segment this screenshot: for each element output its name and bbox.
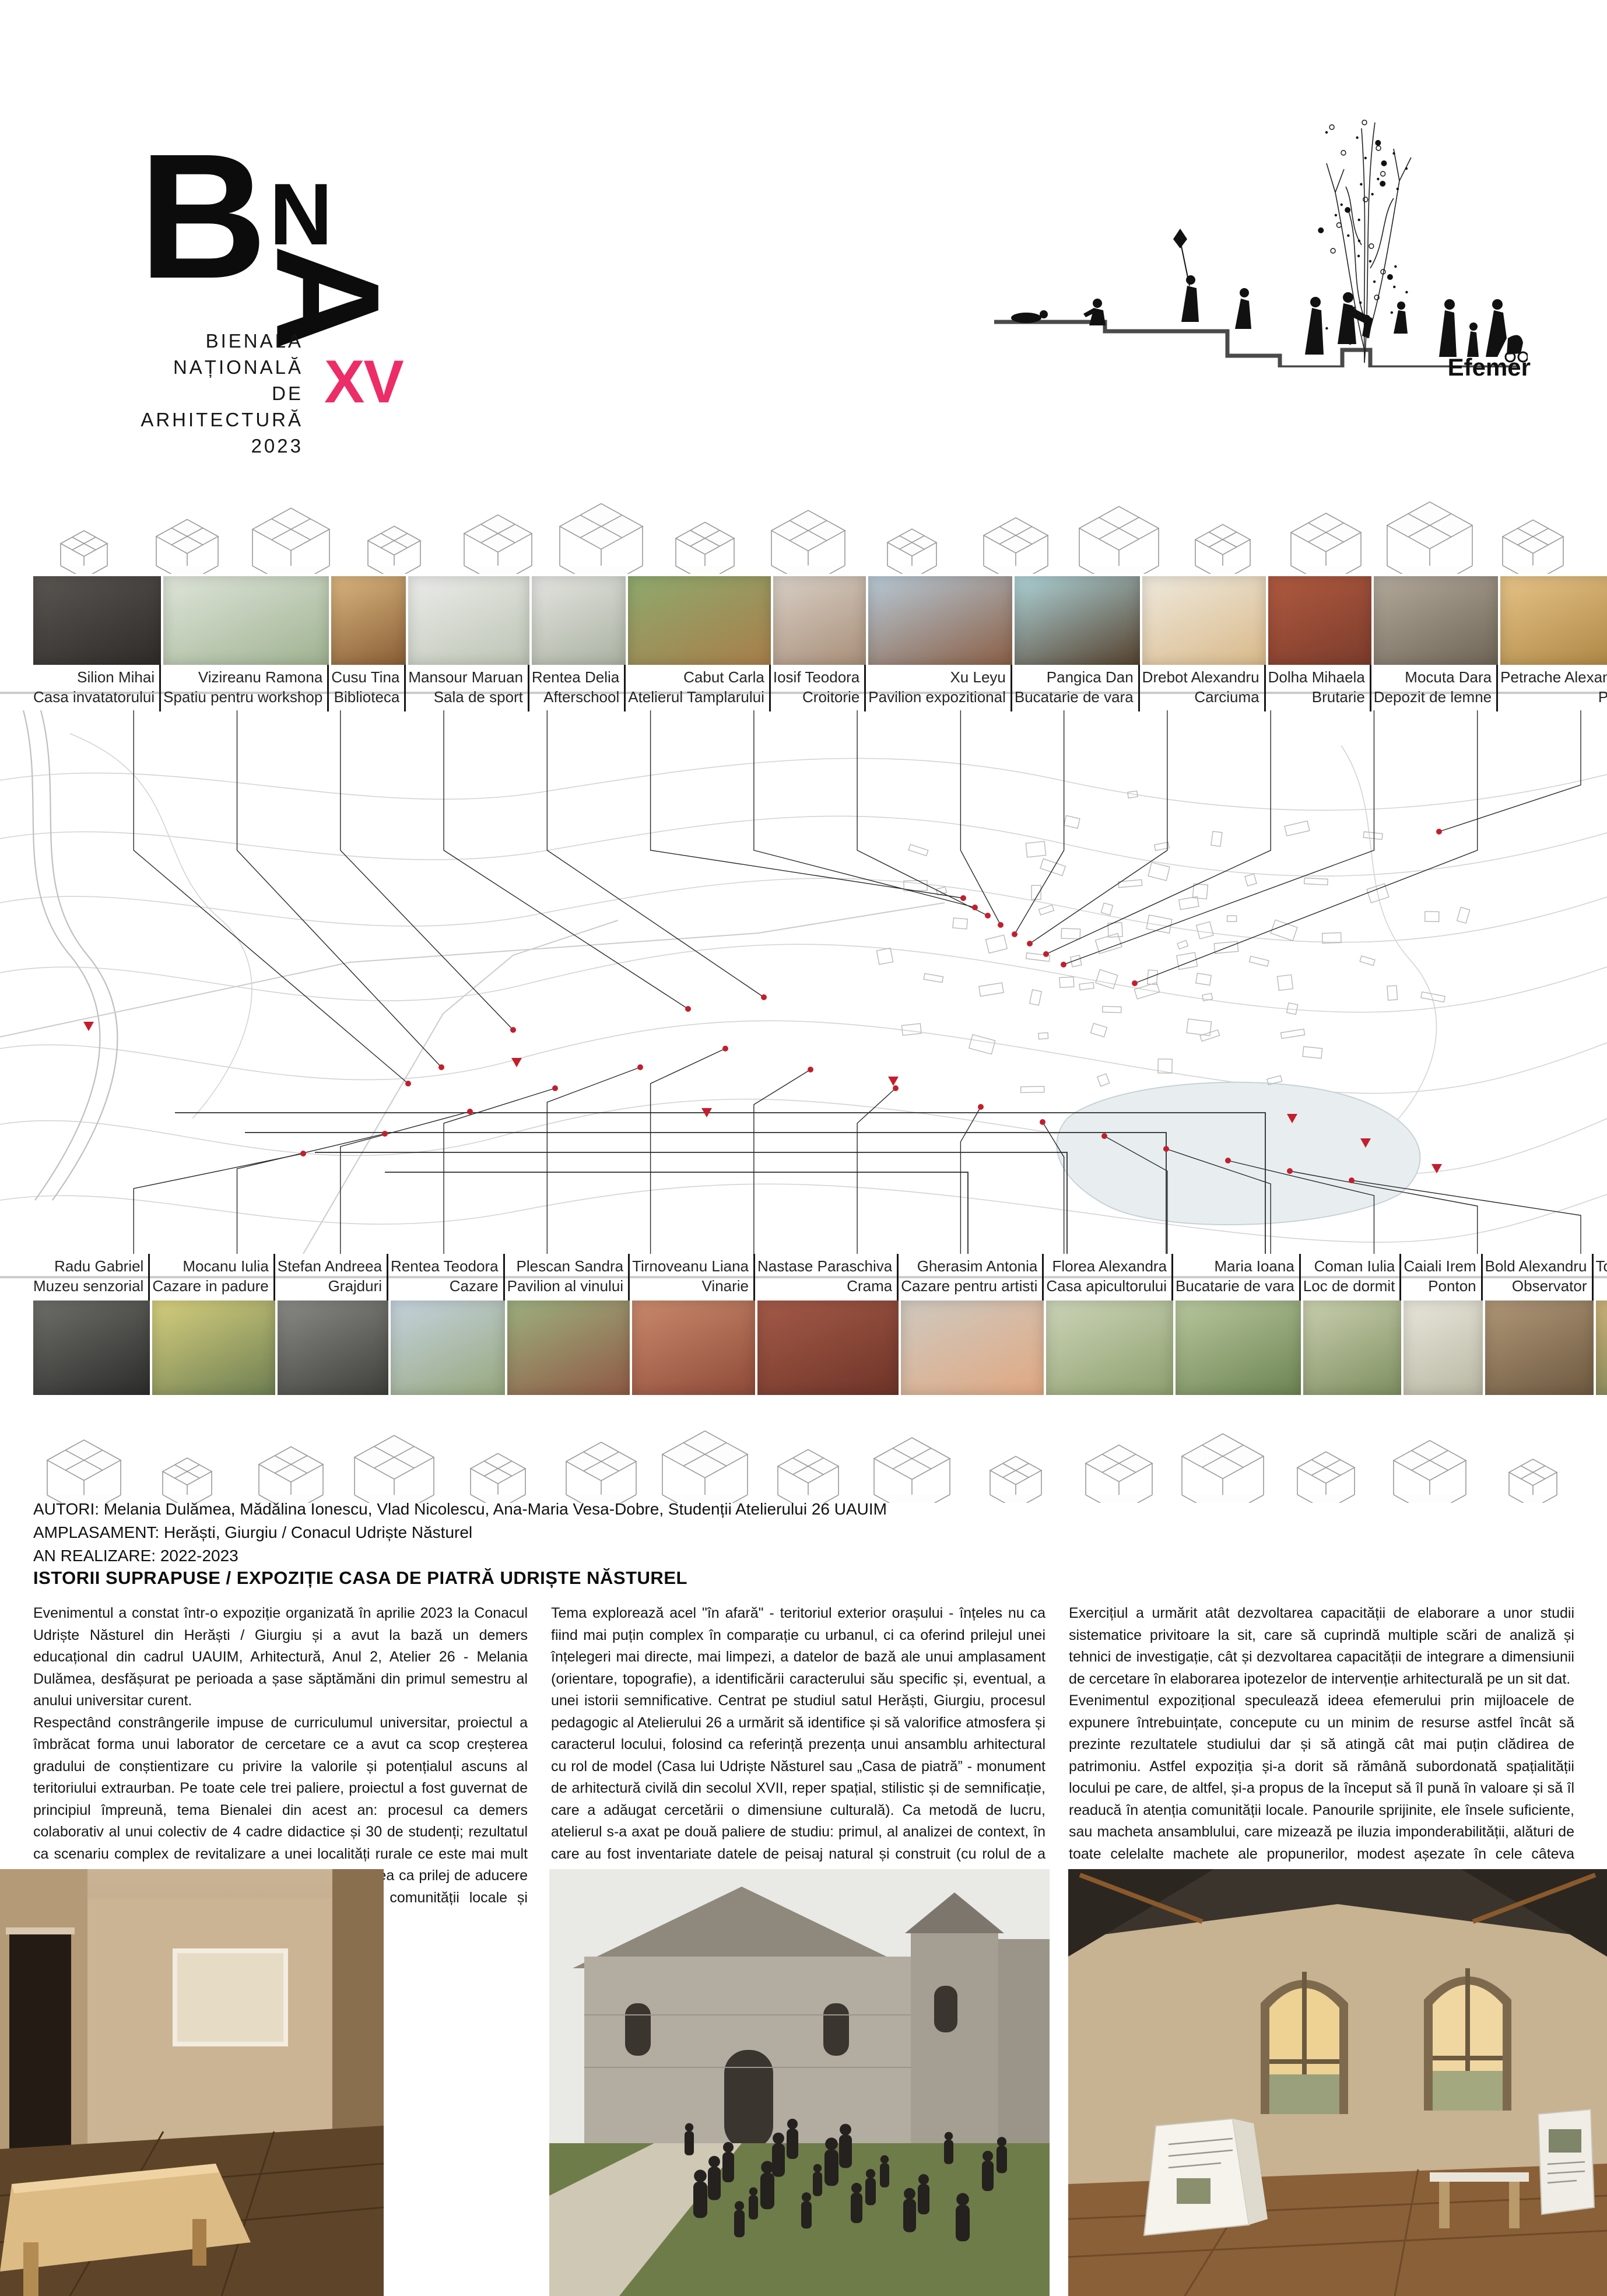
project-caption: Caiali IremPonton xyxy=(1404,1254,1482,1301)
axonometric-drawing xyxy=(966,1425,1066,1503)
project-name: Grajduri xyxy=(278,1276,382,1296)
axonometric-drawing xyxy=(344,495,444,574)
project-cell: Stefan AndreeaGrajduri xyxy=(278,1254,388,1395)
axonometric-drawing xyxy=(758,478,858,574)
map-point-marker xyxy=(893,1085,899,1091)
project-name: Muzeu senzorial xyxy=(33,1276,143,1296)
project-thumbnail xyxy=(628,576,771,665)
project-thumbnail xyxy=(1596,1301,1607,1395)
project-thumbnail xyxy=(33,1301,150,1395)
project-caption: Florea AlexandraCasa apicultorului xyxy=(1046,1254,1173,1301)
project-cell: Drebot AlexandruCarciuma xyxy=(1142,576,1266,711)
axonometric-drawing xyxy=(448,483,548,574)
project-thumbnail xyxy=(33,576,161,665)
project-name: Depozit de lemne xyxy=(1374,687,1492,707)
project-name: Afterschool xyxy=(532,687,619,707)
project-caption: Mansour MaruanSala de sport xyxy=(408,665,529,711)
author-name: Maria Ioana xyxy=(1176,1256,1294,1276)
site-plan-map xyxy=(0,710,1607,1254)
project-cell: Pangica DanBucatarie de vara xyxy=(1015,576,1140,711)
logo-line: ARHITECTURĂ xyxy=(70,406,303,433)
author-name: Rentea Delia xyxy=(532,667,619,687)
axonometric-drawing xyxy=(758,1418,858,1503)
project-thumbnail xyxy=(901,1301,1044,1395)
project-name: Brutarie xyxy=(1268,687,1365,707)
map-point-marker xyxy=(998,922,1004,928)
body-paragraph: Exercițiul a urmărit atât dezvoltarea ca… xyxy=(1069,1603,1574,1690)
project-thumbnail xyxy=(1142,576,1266,665)
project-thumbnail xyxy=(868,576,1012,665)
photo-exhibition-room xyxy=(1068,1869,1607,2296)
map-point-marker xyxy=(685,1006,691,1012)
author-name: Bold Alexandru xyxy=(1485,1256,1587,1276)
axonometric-drawing xyxy=(1069,474,1169,574)
project-thumbnail xyxy=(1374,576,1498,665)
people-silhouettes xyxy=(1011,229,1528,362)
project-name: Casa apicultorului xyxy=(1046,1276,1167,1296)
axonometric-drawing xyxy=(655,490,755,574)
project-cell: Silion MihaiCasa invatatorului xyxy=(33,576,161,711)
project-name: Carciuma xyxy=(1142,687,1259,707)
map-point-marker xyxy=(1101,1133,1107,1139)
project-name: Casa invatatorului xyxy=(33,687,155,707)
map-point-marker xyxy=(1027,941,1033,947)
people-illustration xyxy=(985,93,1528,367)
author-name: Vizireanu Ramona xyxy=(163,667,322,687)
project-name: Vinarie xyxy=(632,1276,749,1296)
project-cell: Maria IoanaBucatarie de vara xyxy=(1176,1254,1301,1395)
project-caption: Mocuta DaraDepozit de lemne xyxy=(1374,665,1498,711)
project-caption: Silion MihaiCasa invatatorului xyxy=(33,665,161,711)
map-point-marker xyxy=(808,1067,813,1072)
axonometric-drawing xyxy=(862,1405,962,1503)
logo-line: BIENALA xyxy=(70,328,303,354)
axonometric-drawing xyxy=(655,1398,755,1503)
project-name: Spatiu pentru workshop xyxy=(163,687,322,707)
project-cell: Cabut CarlaAtelierul Tamplarului xyxy=(628,576,771,711)
project-cell: Nastase ParaschivaCrama xyxy=(757,1254,899,1395)
map-point-marker xyxy=(467,1109,473,1114)
project-cell: Radu GabrielMuzeu senzorial xyxy=(33,1254,150,1395)
project-name: Sala de sport xyxy=(408,687,523,707)
project-name: Cazare xyxy=(391,1276,499,1296)
arched-window xyxy=(1261,1972,1348,2114)
author-name: Mocanu Iulia xyxy=(152,1256,268,1276)
author-name: Petrache Alexandru xyxy=(1500,667,1607,687)
project-caption: Stefan AndreeaGrajduri xyxy=(278,1254,388,1301)
logo-line: DE xyxy=(70,380,303,406)
project-cell: Vizireanu RamonaSpatiu pentru workshop xyxy=(163,576,329,711)
project-row-bottom: Radu GabrielMuzeu senzorialMocanu IuliaC… xyxy=(33,1254,1584,1395)
project-caption: Tirnoveanu LianaVinarie xyxy=(632,1254,755,1301)
lake xyxy=(1057,1082,1420,1225)
project-cell: Gherasim AntoniaCazare pentru artisti xyxy=(901,1254,1044,1395)
project-thumbnail xyxy=(278,1301,388,1395)
axonometric-drawing xyxy=(1380,1408,1480,1503)
author-name: Rentea Teodora xyxy=(391,1256,499,1276)
project-name: Observator xyxy=(1485,1276,1587,1296)
axonometric-drawing xyxy=(1173,1401,1273,1503)
project-thumbnail xyxy=(1176,1301,1301,1395)
author-name: Cusu Tina xyxy=(331,667,399,687)
site-line: AMPLASAMENT: Herăști, Giurgiu / Conacul … xyxy=(33,1521,472,1544)
project-thumbnail xyxy=(391,1301,505,1395)
author-name: Coman Iulia xyxy=(1303,1256,1395,1276)
author-name: Mocuta Dara xyxy=(1374,667,1492,687)
axonometric-drawing xyxy=(862,497,962,574)
axonometric-drawing xyxy=(1069,1413,1169,1503)
axonometric-drawing xyxy=(241,476,341,574)
axonometric-row-top xyxy=(33,465,1584,574)
author-name: Stefan Andreea xyxy=(278,1256,382,1276)
project-caption: Drebot AlexandruCarciuma xyxy=(1142,665,1266,711)
axonometric-drawing xyxy=(137,1426,237,1503)
logo-edition: XV xyxy=(324,348,403,417)
project-caption: Plescan SandraPavilion al vinului xyxy=(507,1254,630,1301)
map-point-marker xyxy=(510,1027,516,1033)
project-caption: Xu LeyuPavilion expozitional xyxy=(868,665,1012,711)
axonometric-drawing xyxy=(34,1408,134,1503)
project-caption: Iosif TeodoraCroitorie xyxy=(773,665,866,711)
project-thumbnail xyxy=(1015,576,1140,665)
body-paragraph: Evenimentul a constat într-o expoziție o… xyxy=(33,1603,528,1712)
author-name: Drebot Alexandru xyxy=(1142,667,1259,687)
project-cell: Cusu TinaBiblioteca xyxy=(331,576,406,711)
map-point-marker xyxy=(978,1104,984,1110)
map-point-marker xyxy=(300,1151,306,1156)
project-thumbnail xyxy=(532,576,626,665)
map-point-marker xyxy=(1061,962,1066,968)
event-title: Efemer xyxy=(1414,353,1531,381)
poster: B N A BIENALA NAȚIONALĂ DE ARHITECTURĂ 2… xyxy=(0,0,1607,2296)
map-point-marker xyxy=(1040,1119,1045,1125)
axonometric-drawing xyxy=(241,1415,341,1503)
project-thumbnail xyxy=(1500,576,1607,665)
author-name: Tirnoveanu Liana xyxy=(632,1256,749,1276)
project-caption: Bold AlexandruObservator xyxy=(1485,1254,1594,1301)
map-point-marker xyxy=(1132,980,1138,986)
project-cell: Xu LeyuPavilion expozitional xyxy=(868,576,1012,711)
project-name: Croitorie xyxy=(773,687,859,707)
author-name: Cabut Carla xyxy=(628,667,764,687)
project-caption: Radu GabrielMuzeu senzorial xyxy=(33,1254,150,1301)
project-cell: Toader AndreeaFlorarie xyxy=(1596,1254,1607,1395)
logo-wordmark: BIENALA NAȚIONALĂ DE ARHITECTURĂ 2023 xyxy=(70,328,303,459)
project-caption: Nastase ParaschivaCrama xyxy=(757,1254,899,1301)
author-name: Plescan Sandra xyxy=(507,1256,623,1276)
project-cell: Bold AlexandruObservator xyxy=(1485,1254,1594,1395)
project-thumbnail xyxy=(757,1301,899,1395)
project-cell: Coman IuliaLoc de dormit xyxy=(1303,1254,1402,1395)
project-caption: Petrache AlexandruPiata xyxy=(1500,665,1607,711)
project-cell: Florea AlexandraCasa apicultorului xyxy=(1046,1254,1173,1395)
project-cell: Dolha MihaelaBrutarie xyxy=(1268,576,1371,711)
author-name: Radu Gabriel xyxy=(33,1256,143,1276)
project-thumbnail xyxy=(632,1301,755,1395)
author-name: Iosif Teodora xyxy=(773,667,859,687)
project-name: Loc de dormit xyxy=(1303,1276,1395,1296)
author-name: Xu Leyu xyxy=(868,667,1006,687)
project-caption: Cabut CarlaAtelierul Tamplarului xyxy=(628,665,771,711)
map-point-marker xyxy=(722,1046,728,1051)
project-thumbnail xyxy=(152,1301,275,1395)
author-name: Dolha Mihaela xyxy=(1268,667,1365,687)
project-cell: Caiali IremPonton xyxy=(1404,1254,1482,1395)
axonometric-drawing xyxy=(551,1410,651,1503)
project-cell: Tirnoveanu LianaVinarie xyxy=(632,1254,755,1395)
map-point-marker xyxy=(1287,1168,1293,1174)
project-caption: Gherasim AntoniaCazare pentru artisti xyxy=(901,1254,1044,1301)
project-thumbnail xyxy=(507,1301,630,1395)
axonometric-drawing xyxy=(448,1422,548,1503)
author-name: Nastase Paraschiva xyxy=(757,1256,892,1276)
map-point-marker xyxy=(552,1085,558,1091)
project-thumbnail xyxy=(1404,1301,1482,1395)
project-name: Atelierul Tamplarului xyxy=(628,687,764,707)
project-caption: Vizireanu RamonaSpatiu pentru workshop xyxy=(163,665,329,711)
project-name: Pavilion al vinului xyxy=(507,1276,623,1296)
axonometric-drawing xyxy=(1380,469,1480,574)
year-line: AN REALIZARE: 2022-2023 xyxy=(33,1544,238,1568)
project-row-top: Silion MihaiCasa invatatoruluiVizireanu … xyxy=(33,576,1584,711)
logo-letter-b: B xyxy=(139,127,264,305)
author-name: Gherasim Antonia xyxy=(901,1256,1037,1276)
project-cell: Mansour MaruanSala de sport xyxy=(408,576,529,711)
project-caption: Pangica DanBucatarie de vara xyxy=(1015,665,1140,711)
map-point-marker xyxy=(1436,829,1442,835)
project-thumbnail xyxy=(163,576,329,665)
author-name: Florea Alexandra xyxy=(1046,1256,1167,1276)
project-caption: Maria IoanaBucatarie de vara xyxy=(1176,1254,1301,1301)
axonometric-drawing xyxy=(1483,488,1583,574)
axonometric-drawing xyxy=(34,499,134,574)
project-cell: Plescan SandraPavilion al vinului xyxy=(507,1254,630,1395)
map-point-marker xyxy=(1225,1158,1231,1163)
axonometric-drawing xyxy=(1483,1428,1583,1503)
project-caption: Toader AndreeaFlorarie xyxy=(1596,1254,1607,1301)
project-name: Florarie xyxy=(1596,1276,1607,1296)
axonometric-drawing xyxy=(344,1403,444,1503)
author-name: Silion Mihai xyxy=(33,667,155,687)
author-name: Caiali Irem xyxy=(1404,1256,1476,1276)
project-name: Piata xyxy=(1500,687,1607,707)
project-name: Cazare in padure xyxy=(152,1276,268,1296)
author-name: Mansour Maruan xyxy=(408,667,523,687)
project-cell: Rentea TeodoraCazare xyxy=(391,1254,505,1395)
map-point-marker xyxy=(1043,951,1049,957)
photo-courtyard-crowd xyxy=(549,1869,1050,2296)
project-caption: Coman IuliaLoc de dormit xyxy=(1303,1254,1402,1301)
project-cell: Rentea DeliaAfterschool xyxy=(532,576,626,711)
map-point-marker xyxy=(972,905,978,910)
map-point-marker xyxy=(405,1081,411,1086)
project-thumbnail xyxy=(1303,1301,1402,1395)
logo-line: 2023 xyxy=(70,433,303,459)
project-cell: Mocuta DaraDepozit de lemne xyxy=(1374,576,1498,711)
map-point-marker xyxy=(960,895,966,901)
map-point-marker xyxy=(985,913,991,919)
project-name: Crama xyxy=(757,1276,892,1296)
author-name: Toader Andreea xyxy=(1596,1256,1607,1276)
map-point-marker xyxy=(382,1131,388,1137)
photo-interior-table xyxy=(0,1869,384,2296)
project-name: Cazare pentru artisti xyxy=(901,1276,1037,1296)
project-caption: Cusu TinaBiblioteca xyxy=(331,665,406,711)
project-name: Bucatarie de vara xyxy=(1015,687,1134,707)
project-thumbnail xyxy=(408,576,529,665)
project-caption: Rentea DeliaAfterschool xyxy=(532,665,626,711)
project-name: Bucatarie de vara xyxy=(1176,1276,1294,1296)
project-caption: Dolha MihaelaBrutarie xyxy=(1268,665,1371,711)
map-point-marker xyxy=(761,994,767,1000)
axonometric-drawing xyxy=(551,471,651,574)
axonometric-drawing xyxy=(1173,493,1273,574)
axonometric-drawing xyxy=(1276,1420,1376,1503)
project-caption: Rentea TeodoraCazare xyxy=(391,1254,505,1301)
map-point-marker xyxy=(438,1064,444,1070)
axonometric-drawing xyxy=(1276,481,1376,574)
axonometric-row-bottom xyxy=(33,1398,1584,1496)
project-thumbnail xyxy=(331,576,406,665)
arched-window xyxy=(1424,1968,1511,2111)
project-cell: Iosif TeodoraCroitorie xyxy=(773,576,866,711)
authors-line: AUTORI: Melania Dulămea, Mădălina Ionesc… xyxy=(33,1498,887,1521)
project-cell: Mocanu IuliaCazare in padure xyxy=(152,1254,275,1395)
map-point-marker xyxy=(1163,1146,1169,1152)
project-thumbnail xyxy=(1046,1301,1173,1395)
axonometric-drawing xyxy=(137,488,237,574)
map-point-marker xyxy=(637,1064,643,1070)
project-name: Biblioteca xyxy=(331,687,399,707)
project-thumbnail xyxy=(773,576,866,665)
map-point-marker xyxy=(1349,1177,1355,1183)
logo-line: NAȚIONALĂ xyxy=(70,354,303,380)
project-name: Pavilion expozitional xyxy=(868,687,1006,707)
section-title: ISTORII SUPRAPUSE / EXPOZIȚIE CASA DE PI… xyxy=(33,1568,687,1589)
axonometric-drawing xyxy=(966,486,1066,574)
project-name: Ponton xyxy=(1404,1276,1476,1296)
project-thumbnail xyxy=(1485,1301,1594,1395)
map-point-marker xyxy=(1012,931,1017,937)
project-cell: Petrache AlexandruPiata xyxy=(1500,576,1607,711)
project-thumbnail xyxy=(1268,576,1371,665)
author-name: Pangica Dan xyxy=(1015,667,1134,687)
project-caption: Mocanu IuliaCazare in padure xyxy=(152,1254,275,1301)
